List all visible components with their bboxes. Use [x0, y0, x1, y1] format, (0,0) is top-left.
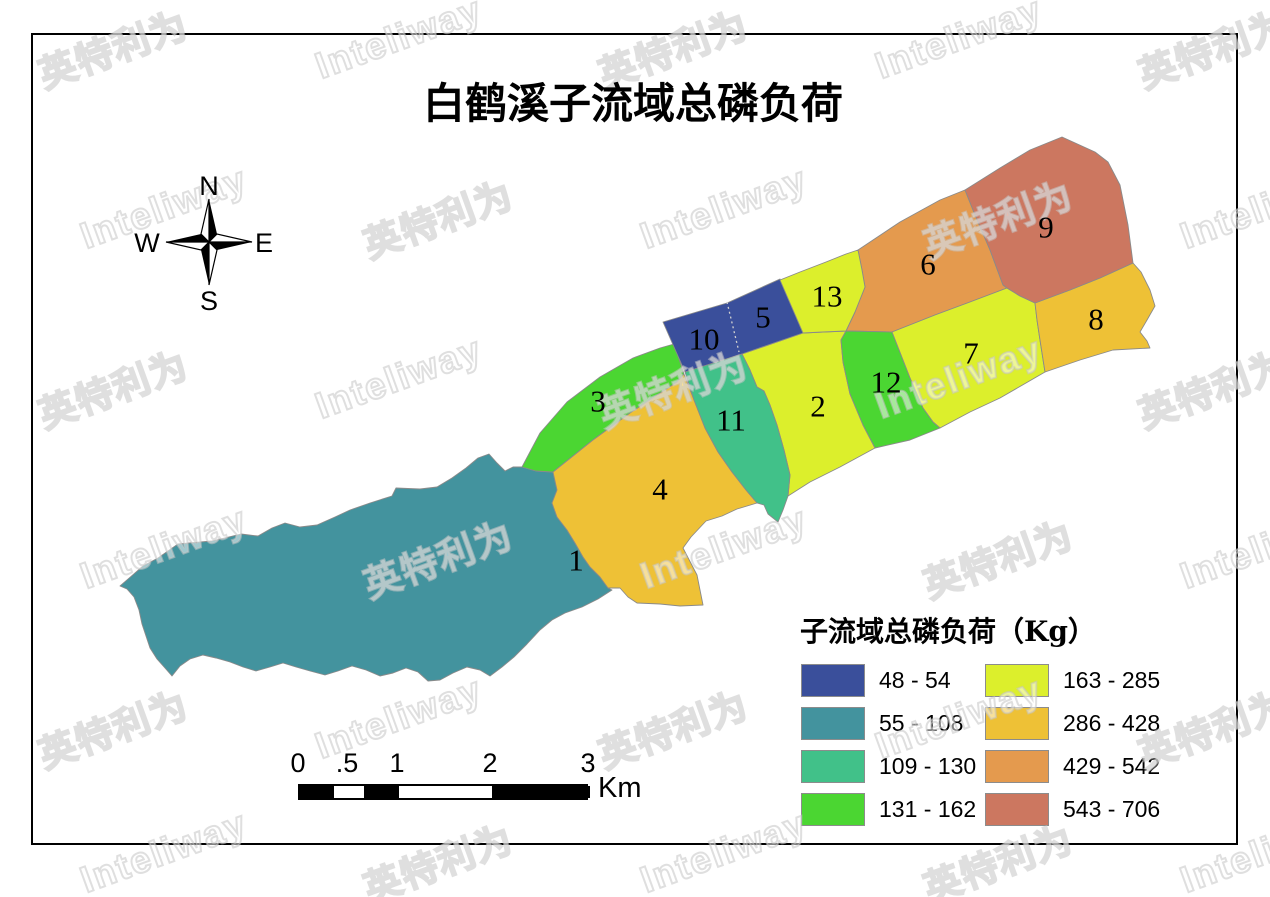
- scalebar-tick-label: 1: [389, 748, 404, 779]
- scalebar-tick-label: 0: [290, 748, 305, 779]
- region-label-13: 13: [812, 279, 843, 314]
- region-label-7: 7: [963, 336, 979, 371]
- compass-label-north: N: [199, 171, 219, 201]
- region-label-3: 3: [590, 384, 606, 419]
- scalebar-unit: Km: [598, 772, 642, 805]
- compass-label-east: E: [255, 228, 273, 258]
- compass-rose: N E S W: [134, 171, 273, 316]
- scalebar-segment: [364, 786, 399, 798]
- map-document: 英特利为Inteliway英特利为Inteliway英特利为Inteliway英…: [0, 0, 1270, 897]
- region-label-10: 10: [689, 322, 720, 357]
- compass-label-south: S: [200, 286, 218, 316]
- compass-point: [209, 242, 217, 285]
- scalebar-tick-label: .5: [336, 748, 359, 779]
- compass-point: [166, 242, 209, 250]
- map-overlay: N E S W 12345678910111213: [0, 0, 1270, 897]
- scalebar-segment: [300, 786, 334, 798]
- scalebar-segment: [399, 786, 492, 798]
- region-label-1: 1: [568, 543, 584, 578]
- region-label-9: 9: [1038, 210, 1054, 245]
- compass-point: [209, 234, 252, 242]
- scalebar-tick-label: 2: [482, 748, 497, 779]
- compass-label-west: W: [134, 228, 160, 258]
- region-label-4: 4: [652, 472, 668, 507]
- scalebar: [298, 784, 588, 800]
- scalebar-segment: [334, 786, 364, 798]
- scalebar-tick-label: 3: [580, 748, 595, 779]
- region-label-2: 2: [810, 389, 826, 424]
- region-labels: 12345678910111213: [568, 210, 1104, 578]
- region-label-8: 8: [1088, 302, 1104, 337]
- region-label-12: 12: [871, 365, 902, 400]
- region-label-6: 6: [920, 247, 936, 282]
- region-label-11: 11: [716, 403, 746, 438]
- region-label-5: 5: [755, 300, 771, 335]
- scalebar-segment: [492, 786, 590, 798]
